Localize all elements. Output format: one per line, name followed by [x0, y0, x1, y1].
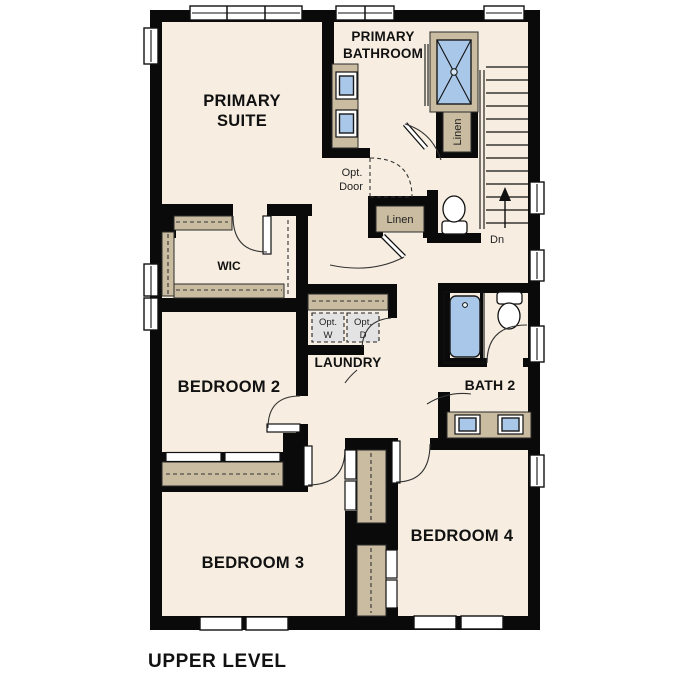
- laundry-shelf: [308, 294, 388, 310]
- laundry-label: LAUNDRY: [315, 355, 382, 370]
- linen-bath-label: Linen: [452, 119, 464, 146]
- bath2-label: BATH 2: [465, 377, 516, 393]
- closet-slider-right: [225, 453, 280, 462]
- primary-suite-label: PRIMARY: [203, 92, 281, 110]
- floor-plan: PRIMARY SUITE PRIMARY BATHROOM WIC Opt. …: [0, 0, 687, 687]
- linen-hall-label: Linen: [387, 214, 414, 226]
- opt-washer-label2: W: [324, 330, 333, 341]
- opt-door-label: Opt.: [342, 167, 363, 179]
- primary-bathroom-label: PRIMARY: [351, 29, 414, 44]
- closet-slider-left: [166, 453, 221, 462]
- opt-dryer-label2: D: [360, 330, 367, 341]
- toilet-compartment-toilet: [442, 196, 467, 234]
- page-title: UPPER LEVEL: [148, 651, 287, 672]
- primary-suite-label2: SUITE: [217, 112, 267, 130]
- bedroom3-label: BEDROOM 3: [202, 554, 305, 572]
- bath2-toilet-tank: [497, 292, 522, 304]
- wic-label: WIC: [217, 259, 241, 273]
- opt-dryer-label: Opt.: [354, 317, 372, 328]
- wic-shelf-bottom: [174, 284, 284, 298]
- opt-washer-label: Opt.: [319, 317, 337, 328]
- bath2-toilet-bowl: [498, 303, 520, 329]
- wic-shelf-top: [174, 216, 232, 230]
- shower: [425, 32, 478, 112]
- opt-door-label2: Door: [339, 181, 363, 193]
- bedroom4-label: BEDROOM 4: [411, 527, 514, 545]
- bedroom2-label: BEDROOM 2: [178, 378, 281, 396]
- stairs-down-label: Dn: [490, 234, 504, 246]
- primary-bathroom-label2: BATHROOM: [343, 46, 423, 61]
